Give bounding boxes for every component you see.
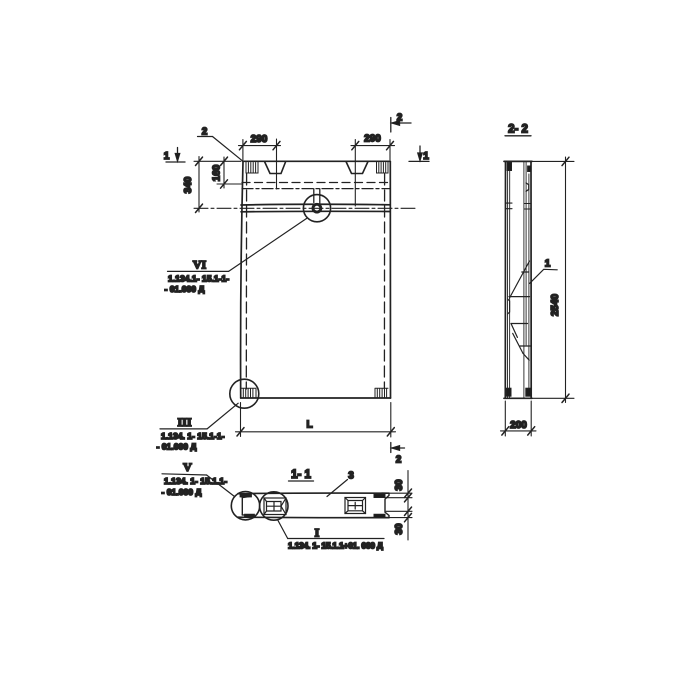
svg-text:160: 160 (212, 164, 223, 181)
svg-text:- 01.000 Д: - 01.000 Д (165, 284, 205, 294)
svg-text:2: 2 (396, 455, 402, 466)
svg-text:1.134. 1- 15.1-1-: 1.134. 1- 15.1-1- (161, 431, 225, 441)
svg-text:- 01.000 Д: - 01.000 Д (157, 442, 197, 452)
svg-text:30: 30 (394, 479, 405, 491)
svg-text:30: 30 (394, 523, 405, 535)
svg-text:1.134.1- 15.1-1-: 1.134.1- 15.1-1- (168, 274, 229, 284)
svg-text:2: 2 (202, 127, 208, 138)
svg-text:340: 340 (183, 176, 194, 193)
svg-text:1: 1 (545, 259, 551, 270)
svg-text:200: 200 (510, 420, 527, 431)
svg-text:2: 2 (397, 113, 403, 124)
svg-text:2- 2: 2- 2 (508, 124, 528, 136)
svg-text:I: I (315, 526, 320, 540)
svg-text:3: 3 (348, 471, 354, 482)
svg-text:- 01.000 Д: - 01.000 Д (162, 487, 202, 497)
svg-text:III: III (177, 415, 191, 429)
svg-text:1.134. 1- 15.1.1-: 1.134. 1- 15.1.1- (164, 476, 227, 486)
svg-text:L: L (306, 420, 312, 431)
svg-text:2540: 2540 (550, 293, 561, 316)
svg-text:V: V (183, 460, 192, 474)
svg-text:1: 1 (423, 151, 429, 162)
svg-text:VI: VI (193, 258, 207, 272)
svg-text:1: 1 (164, 151, 170, 162)
svg-text:1- 1: 1- 1 (291, 469, 311, 481)
svg-text:1.134. 1- 15.1.1+01. 000 Д: 1.134. 1- 15.1.1+01. 000 Д (288, 541, 383, 551)
svg-text:290: 290 (364, 134, 381, 145)
svg-text:290: 290 (251, 134, 268, 145)
